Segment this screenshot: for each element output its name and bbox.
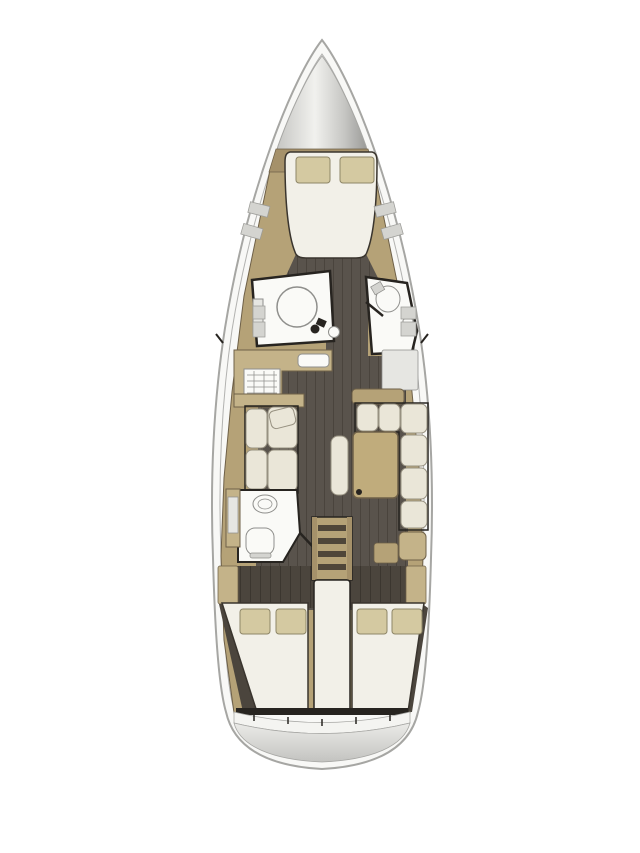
shroud-mark-starboard <box>421 334 428 343</box>
l-sofa-cushion-3 <box>401 435 427 466</box>
shroud-mark-port <box>216 334 223 343</box>
vent-starboard-1 <box>401 307 416 319</box>
shower-column <box>311 325 320 334</box>
step-rail-right <box>347 517 352 580</box>
aft-head-toilet-seat <box>250 553 271 558</box>
l-sofa-cushion-5 <box>401 501 427 528</box>
aft-head-mirror <box>228 497 238 533</box>
port-sofa-back-1 <box>246 409 267 448</box>
step-2 <box>318 538 346 544</box>
aft-band-locker-port <box>218 566 238 604</box>
aft-band-locker-starboard <box>406 566 426 604</box>
nav-panel <box>382 350 418 390</box>
corridor-sink-knob <box>329 327 340 338</box>
l-sofa-cushion-1 <box>357 404 378 431</box>
yacht-floor-plan <box>0 0 640 853</box>
forward-pillow-starboard <box>340 157 374 183</box>
vent-port-2 <box>253 322 265 337</box>
aft-pillow-port-2 <box>276 609 306 634</box>
step-rail-left <box>312 517 317 580</box>
step-1 <box>318 525 346 531</box>
forward-pillow-port <box>296 157 330 183</box>
step-4 <box>318 564 346 570</box>
aft-pillow-starboard-2 <box>392 609 422 634</box>
transom-bulkhead <box>236 708 408 715</box>
l-sofa-corner-cushion <box>401 404 427 433</box>
port-sofa-back-2 <box>246 450 267 489</box>
center-passage <box>314 580 350 712</box>
vent-port-1 <box>253 306 265 319</box>
table-leg <box>356 489 362 495</box>
starboard-aft-cabinet <box>399 532 426 560</box>
vent-starboard-2 <box>401 322 416 336</box>
starboard-locker <box>374 543 398 563</box>
aft-pillow-starboard-1 <box>357 609 387 634</box>
aft-pillow-port-1 <box>240 609 270 634</box>
port-sofa-shelf <box>234 394 304 407</box>
l-sofa-cushion-4 <box>401 468 427 499</box>
galley-sink <box>298 354 329 367</box>
aft-head-sink <box>253 495 277 513</box>
l-sofa-cushion-2 <box>379 404 400 431</box>
saloon-table <box>353 432 398 498</box>
nav-shelf <box>352 389 404 404</box>
floor-plan-canvas <box>0 0 640 853</box>
step-3 <box>318 551 346 557</box>
port-sofa-seat-2 <box>268 450 297 491</box>
companionway <box>312 517 352 712</box>
aft-head-toilet <box>246 528 274 555</box>
saloon-bench-cushion <box>331 436 348 495</box>
